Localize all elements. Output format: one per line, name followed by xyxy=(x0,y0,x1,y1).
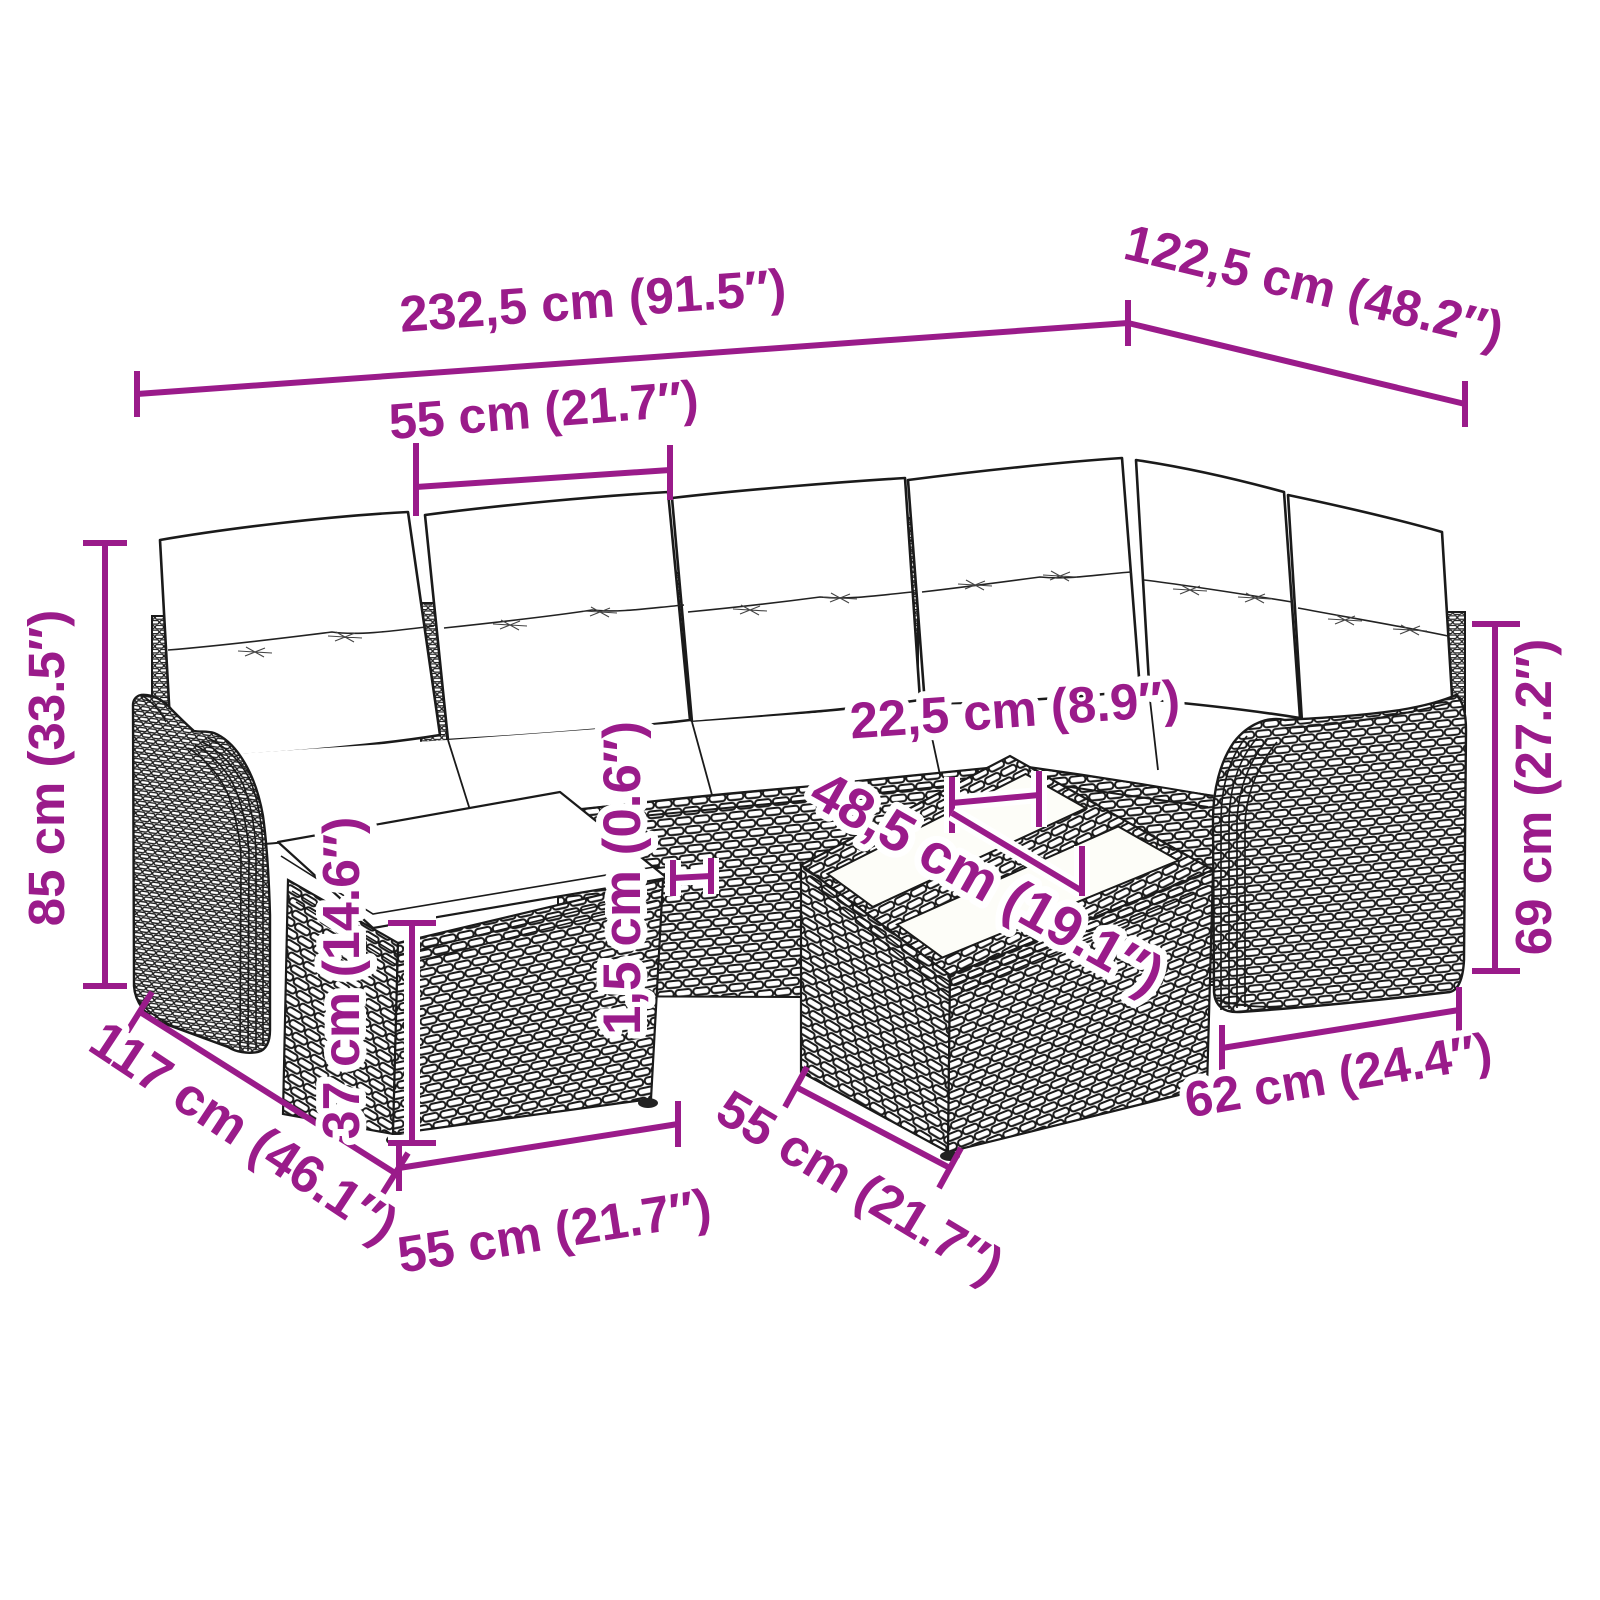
svg-text:85 cm (33.5″): 85 cm (33.5″) xyxy=(18,610,75,926)
svg-text:1,5 cm (0.6″): 1,5 cm (0.6″) xyxy=(593,721,652,1035)
svg-text:69 cm (27.2″): 69 cm (27.2″) xyxy=(1505,639,1562,955)
svg-text:37 cm (14.6″): 37 cm (14.6″) xyxy=(313,817,371,1140)
